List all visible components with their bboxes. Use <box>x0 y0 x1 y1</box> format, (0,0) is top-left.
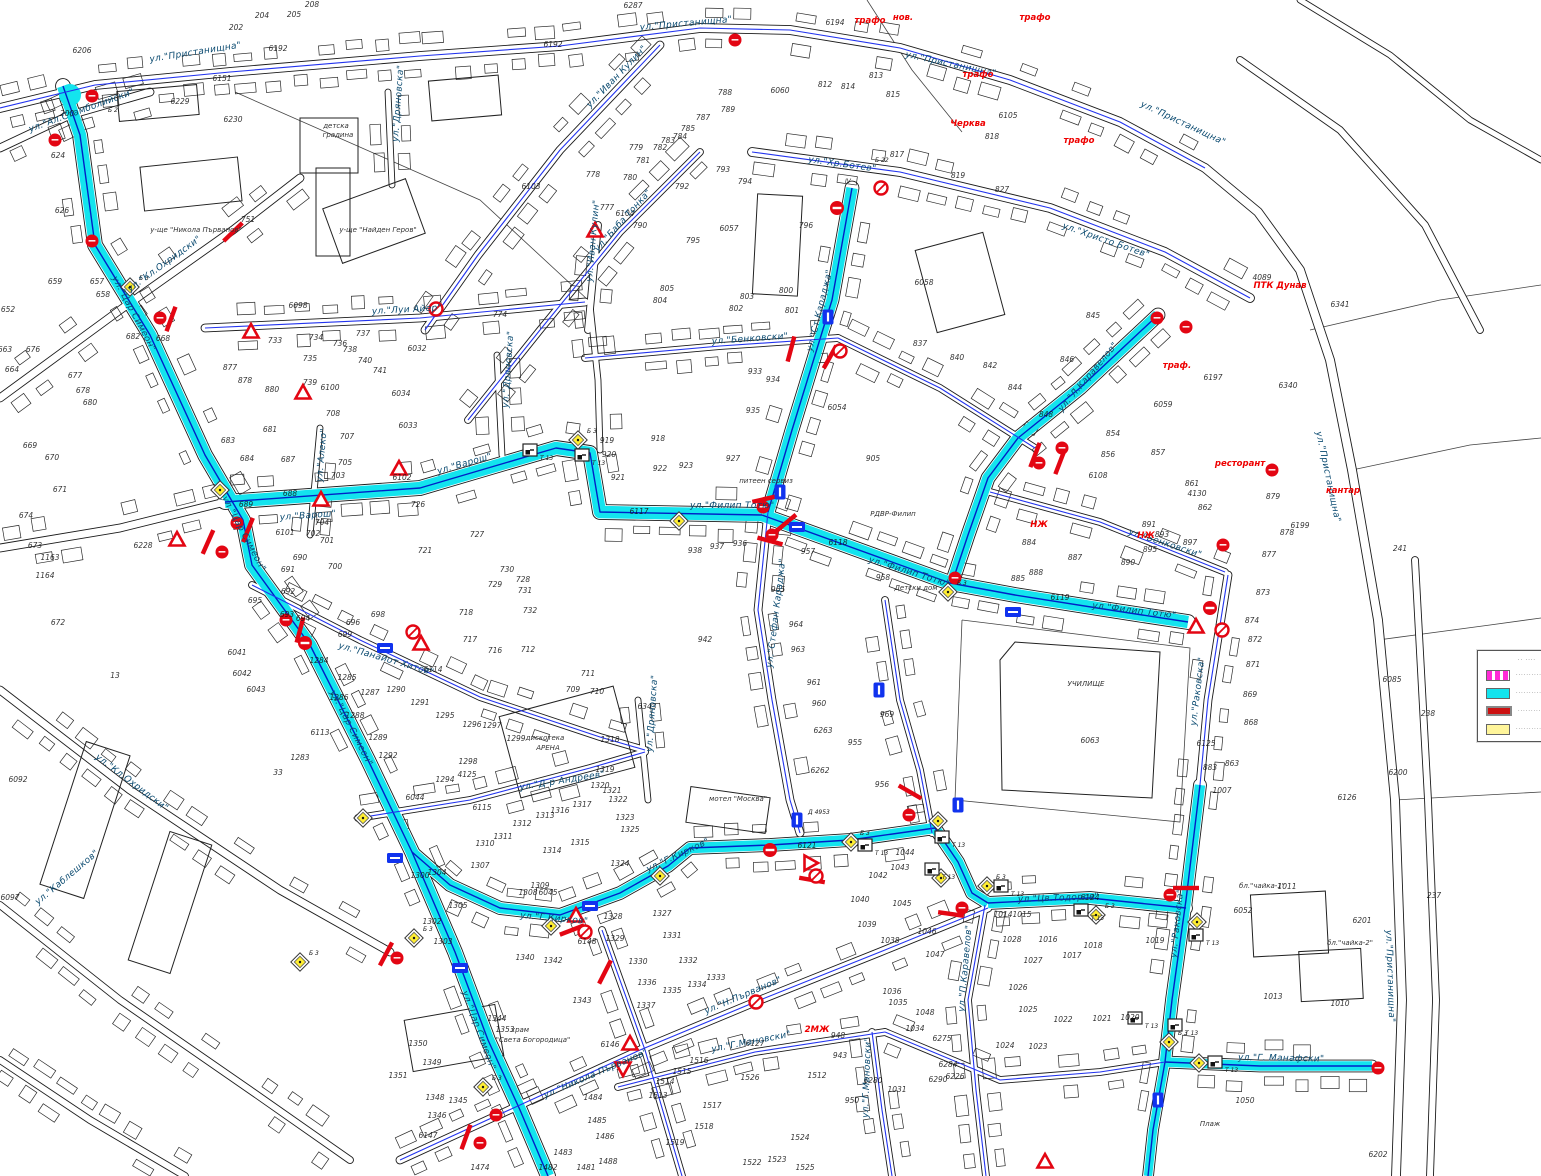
building-footprint <box>10 146 26 162</box>
poi-red-label: трафо <box>1063 136 1094 146</box>
sign-bar <box>380 647 390 649</box>
building-footprint <box>99 1104 120 1123</box>
building-footprint <box>462 231 481 251</box>
no-entry-bar <box>1206 607 1215 609</box>
building-footprint <box>849 521 872 540</box>
building-footprint <box>535 26 555 40</box>
building-footprint <box>1020 63 1038 76</box>
building-footprint <box>977 966 992 986</box>
hydrant-tag <box>52 139 59 141</box>
parcel-number: 1299 <box>506 734 525 743</box>
building-footprint <box>422 31 444 44</box>
parcel-number: 950 <box>845 1096 860 1105</box>
parcel-number: 670 <box>45 453 60 462</box>
building-footprint <box>977 1005 987 1020</box>
parcel-number: 6125 <box>1196 739 1215 748</box>
building-footprint <box>540 319 555 329</box>
building-footprint <box>821 982 843 998</box>
building-footprint <box>640 1113 657 1132</box>
parcel-number: 964 <box>789 620 804 629</box>
building-footprint <box>57 927 75 943</box>
building-footprint <box>875 57 892 71</box>
parcel-number: 708 <box>326 409 341 418</box>
building-footprint <box>753 162 775 177</box>
parcel-number: 827 <box>995 185 1010 194</box>
parcel-number: 1474 <box>470 1163 489 1172</box>
map-viewport[interactable]: Т 13Т 13Т 13Т 13Т 13Т 13Т 13Т 13Т 13Т 13… <box>0 0 1541 1176</box>
parcel-number: 6148 <box>577 937 596 946</box>
sign-bar <box>779 488 781 497</box>
parcel-number: 787 <box>696 113 711 122</box>
box-glyph <box>997 886 1002 891</box>
parcel-number: 1028 <box>1002 935 1021 944</box>
hydrant-box-label: Т 13 <box>1091 915 1104 922</box>
parcel-number: 1324 <box>610 859 629 868</box>
building-footprint <box>36 380 53 396</box>
building-footprint <box>484 64 497 74</box>
building-footprint <box>318 45 334 56</box>
parcel-number: 800 <box>779 286 794 295</box>
building-footprint <box>35 908 54 926</box>
parcel-number: 778 <box>586 170 601 179</box>
parcel-number: 923 <box>679 461 694 470</box>
parcel-number: 1350 <box>408 1039 427 1048</box>
hydrant-tag <box>157 317 164 319</box>
parcel-number: 688 <box>283 489 298 498</box>
building-footprint <box>1148 913 1168 928</box>
building-footprint <box>158 531 174 542</box>
parcel-number: 788 <box>718 88 733 97</box>
building-footprint <box>508 1148 524 1168</box>
building-footprint <box>1113 211 1129 225</box>
building-footprint <box>1169 632 1184 645</box>
parcel-number: 948 <box>831 1031 846 1040</box>
building-footprint <box>259 514 278 524</box>
parcel-number: 845 <box>1086 311 1101 320</box>
hydrant-tag <box>1269 469 1276 471</box>
parcel-number: 695 <box>248 596 263 605</box>
hydrant-icon <box>86 235 99 248</box>
building-footprint <box>1140 149 1157 165</box>
building-footprint <box>1022 876 1035 884</box>
parcel-number: 1311 <box>493 832 512 841</box>
parcel-number: 1314 <box>542 846 561 855</box>
parcel-number: 729 <box>488 580 503 589</box>
parcel-number: 6290 <box>928 1075 947 1084</box>
building-footprint <box>2 525 21 540</box>
road-surface <box>1205 168 1402 1176</box>
building-footprint <box>954 1095 969 1117</box>
parcel-number: 815 <box>886 90 901 99</box>
building-footprint <box>609 1019 625 1038</box>
building-footprint <box>1023 482 1045 495</box>
box-glyph <box>1192 935 1197 940</box>
parcel-number: 1304 <box>427 868 446 877</box>
parcel-number: 710 <box>590 687 605 696</box>
building-footprint <box>401 125 411 141</box>
parcel-number: 883 <box>1203 763 1218 772</box>
hydrant-icon <box>1372 1062 1385 1075</box>
parcel-number: 1346 <box>427 1111 446 1120</box>
building-footprint <box>31 517 46 532</box>
building-footprint <box>851 253 865 267</box>
box-glyph <box>928 869 933 874</box>
poi-red-label: трафо <box>854 16 885 26</box>
building-footprint <box>288 1092 303 1106</box>
building-footprint <box>57 1077 78 1094</box>
landmark-label: АРЕНА <box>535 744 560 752</box>
parcel-number: 921 <box>611 473 625 482</box>
poi-red-label: Черква <box>950 119 986 129</box>
building-footprint <box>753 862 768 872</box>
building-footprint <box>1265 1040 1283 1050</box>
parcel-number: 204 <box>255 11 270 20</box>
hydrant-tag <box>1220 544 1227 546</box>
building-footprint <box>0 81 19 95</box>
building-footprint <box>1061 188 1078 203</box>
building-footprint <box>791 43 811 58</box>
building-footprint <box>1119 916 1140 929</box>
building-footprint <box>359 792 379 805</box>
building-footprint <box>1173 814 1184 835</box>
building-footprint <box>988 1123 1002 1137</box>
parcel-number: 6197 <box>1203 373 1222 382</box>
building-footprint <box>836 942 856 960</box>
box-glyph <box>1171 1025 1176 1030</box>
info-sign-icon <box>792 813 803 828</box>
building-footprint <box>505 288 526 297</box>
building-footprint <box>815 136 832 149</box>
building-footprint <box>896 605 906 619</box>
building-footprint <box>961 45 982 58</box>
building-footprint <box>811 173 827 186</box>
building-footprint <box>552 751 568 767</box>
parcel-number: 6063 <box>1080 736 1099 745</box>
building-footprint <box>952 597 970 609</box>
building-footprint <box>346 947 366 963</box>
parcel-number: 863 <box>1225 759 1240 768</box>
parcel-number: 969 <box>880 710 895 719</box>
building-footprint <box>1321 1076 1339 1088</box>
landmark-label: детска <box>322 122 349 130</box>
parcel-number: 6101 <box>275 528 294 537</box>
map-legend: ·· ·····································… <box>1477 650 1541 742</box>
parcel-number: 663 <box>0 345 12 354</box>
building-footprint <box>268 1117 285 1134</box>
parcel-number: 1283 <box>290 753 309 762</box>
parcel-number: 1297 <box>482 721 501 730</box>
building-footprint <box>39 736 55 751</box>
valve-diamond-label: Б 3 <box>957 580 967 587</box>
building-footprint <box>1070 523 1092 538</box>
parcel-number: 6341 <box>1330 300 1349 309</box>
building-footprint <box>444 986 462 1009</box>
building-footprint <box>11 393 31 412</box>
building-footprint <box>346 39 363 49</box>
building-footprint <box>370 124 381 145</box>
building-footprint <box>1042 616 1064 631</box>
sign-bar <box>796 816 798 825</box>
parcel-number: 237 <box>1427 891 1442 900</box>
parcel-number: 6034 <box>391 389 410 398</box>
valve-diamond-icon <box>291 953 309 971</box>
parcel-number: 1323 <box>615 813 634 822</box>
hydrant-tag <box>952 577 959 579</box>
parcel-number: 6097 <box>0 893 19 902</box>
poi-red-label: НЖ <box>1030 520 1048 530</box>
restriction-ring-icon <box>810 870 823 883</box>
building-footprint <box>614 242 634 264</box>
parcel-number: 1287 <box>360 688 379 697</box>
parcel-number: 6151 <box>212 74 231 83</box>
parcel-number: 933 <box>748 367 763 376</box>
building-footprint <box>61 547 83 563</box>
annotation-label: Б 22 <box>875 157 889 164</box>
parcel-number: 1488 <box>598 1157 617 1166</box>
building-footprint <box>634 526 650 534</box>
building-footprint <box>1087 202 1103 216</box>
parcel-number: 1294 <box>435 775 454 784</box>
building-footprint <box>193 850 212 868</box>
hydrant-icon <box>903 809 916 822</box>
box-glyph <box>1077 910 1082 915</box>
building-footprint <box>554 117 568 132</box>
no-entry-sign-icon <box>1203 601 1217 615</box>
building-footprint <box>1185 278 1203 294</box>
parcel-number: 1322 <box>608 795 627 804</box>
parcel-number: 6032 <box>407 344 426 353</box>
building-footprint <box>569 491 582 506</box>
building-footprint <box>892 1114 903 1130</box>
building-footprint <box>235 83 257 94</box>
parcel-number: 728 <box>516 575 531 584</box>
building-footprint <box>933 770 946 791</box>
parcel-number: 709 <box>566 685 581 694</box>
parcel-number: 626 <box>55 206 70 215</box>
building-footprint <box>645 361 666 370</box>
parcel-number: 658 <box>96 290 111 299</box>
building-footprint <box>1053 488 1069 504</box>
building-footprint <box>214 84 229 95</box>
parcel-number: 961 <box>807 678 821 687</box>
parcel-number: 727 <box>470 530 485 539</box>
route-sign-icon <box>377 643 393 653</box>
building-footprint <box>177 354 196 375</box>
building-footprint <box>257 476 273 487</box>
hydrant-icon <box>490 1109 503 1122</box>
building-footprint <box>645 333 661 344</box>
building-footprint <box>174 489 196 506</box>
building-footprint <box>746 646 758 660</box>
parcel-number: 819 <box>951 171 966 180</box>
parcel-number: 1337 <box>636 1001 655 1010</box>
parcel-number: 1291 <box>410 698 429 707</box>
building-footprint <box>863 1118 875 1133</box>
hydrant-icon <box>154 312 167 325</box>
hydrant-icon <box>766 529 779 542</box>
building-footprint <box>775 861 795 871</box>
building-footprint <box>370 625 388 641</box>
parcel-number: 1027 <box>1023 956 1042 965</box>
hydrant-tag <box>1167 894 1174 896</box>
hydrant-box-label: Т 13 <box>875 850 888 857</box>
building-footprint <box>846 277 861 298</box>
parcel-number: 879 <box>1266 492 1281 501</box>
parcel-number: 818 <box>985 132 1000 141</box>
building-footprint <box>856 364 879 383</box>
large-building <box>140 157 242 211</box>
building-footprint <box>234 53 252 62</box>
building-footprint <box>951 1035 961 1052</box>
no-entry-bar <box>301 642 310 644</box>
parcel-number: 673 <box>28 541 43 550</box>
parcel-number: 1302 <box>422 917 441 926</box>
parcel-boundary <box>1378 618 1541 640</box>
street-name-label: ул."Пристанищна" <box>1313 430 1342 524</box>
building-footprint <box>503 227 524 249</box>
large-building <box>1299 948 1364 1001</box>
hydrant-box-label: Т 13 <box>952 842 965 849</box>
parcel-number: 6054 <box>827 403 846 412</box>
building-footprint <box>716 487 737 500</box>
building-footprint <box>1181 1035 1195 1053</box>
parcel-boundary <box>1395 792 1541 800</box>
building-footprint <box>600 289 612 303</box>
parcel-number: 6201 <box>1352 916 1371 925</box>
parcel-number: 960 <box>812 699 827 708</box>
hydrant-icon <box>1056 442 1069 455</box>
parcel-number: 779 <box>629 143 644 152</box>
building-footprint <box>655 732 665 748</box>
hydrant-icon <box>49 134 62 147</box>
building-footprint <box>898 186 920 202</box>
route-sign-icon <box>452 963 468 973</box>
building-footprint <box>215 866 235 884</box>
building-footprint <box>1177 759 1188 777</box>
box-glyph <box>1211 1062 1216 1067</box>
building-footprint <box>812 390 828 407</box>
parcel-number: 4130 <box>1187 489 1206 498</box>
parcel-number: 1318 <box>600 735 619 744</box>
info-sign-icon <box>953 798 964 813</box>
hydrant-tag <box>1154 317 1161 319</box>
building-footprint <box>320 77 338 88</box>
building-footprint <box>601 990 618 1013</box>
parcel-number: 1485 <box>587 1116 606 1125</box>
building-footprint <box>799 441 815 457</box>
parcel-number: 1325 <box>620 825 639 834</box>
parcel-number: 871 <box>1246 660 1260 669</box>
legend-row: ·········· <box>1486 723 1536 735</box>
building-footprint <box>507 800 524 813</box>
building-footprint <box>574 312 583 328</box>
legend-row: ············ <box>1486 669 1536 681</box>
school-building <box>1000 642 1160 798</box>
building-footprint <box>785 133 806 148</box>
parcel-number: 1039 <box>857 920 876 929</box>
building-footprint <box>649 161 669 181</box>
parcel-number: 1285 <box>337 673 356 682</box>
parcel-number: 705 <box>338 458 353 467</box>
legend-row: ··········· <box>1486 687 1536 699</box>
building-footprint <box>38 1104 59 1122</box>
building-footprint <box>487 877 506 893</box>
building-footprint <box>127 57 143 69</box>
building-footprint <box>627 1089 642 1101</box>
parcel-number: 731 <box>518 586 532 595</box>
parcel-number: 868 <box>1244 718 1259 727</box>
building-footprint <box>1072 82 1091 96</box>
building-footprint <box>848 319 869 336</box>
building-footprint <box>818 246 830 262</box>
hydrant-tag <box>394 957 401 959</box>
hydrant-icon <box>1266 464 1279 477</box>
parcel-number: 6230 <box>223 115 242 124</box>
building-footprint <box>796 13 816 24</box>
poi-red-label: 2МЖ <box>805 1025 830 1035</box>
parcel-number: 680 <box>83 398 98 407</box>
parcel-number: 938 <box>688 546 703 555</box>
closed-valve-bar-icon <box>597 959 613 984</box>
parcel-number: 1292 <box>378 751 397 760</box>
parcel-number: 6058 <box>914 278 933 287</box>
parcel-number: 942 <box>698 635 713 644</box>
building-footprint <box>123 1121 142 1139</box>
building-footprint <box>82 769 101 787</box>
parcel-number: 1515 <box>672 1067 691 1076</box>
building-footprint <box>884 1043 901 1058</box>
parcel-number: 6117 <box>629 507 648 516</box>
building-footprint <box>749 672 764 690</box>
building-footprint <box>1150 959 1164 974</box>
hydrant-tag <box>1375 1067 1382 1069</box>
building-footprint <box>405 889 420 906</box>
parcel-number: 862 <box>1198 503 1213 512</box>
building-footprint <box>312 1152 329 1169</box>
hydrant-tag <box>1059 447 1066 449</box>
building-footprint <box>294 74 308 86</box>
building-footprint <box>752 824 766 832</box>
road-casing <box>425 45 660 330</box>
parcel-number: 1020 <box>1120 1013 1139 1022</box>
parcel-number: 716 <box>488 646 503 655</box>
parcel-number: 880 <box>265 385 280 394</box>
building-footprint <box>986 516 1000 532</box>
parcel-number: 6057 <box>719 224 738 233</box>
hydrant-box-label: Т 13 <box>592 460 605 467</box>
hydrant-tag <box>477 1142 484 1144</box>
building-footprint <box>435 1147 452 1162</box>
cadastral-map-canvas[interactable]: Т 13Т 13Т 13Т 13Т 13Т 13Т 13Т 13Т 13Т 13… <box>0 0 1541 1176</box>
parcel-number: 1308 <box>518 888 537 897</box>
parcel-number: 1042 <box>868 871 887 880</box>
warning-triangle-icon <box>623 1036 638 1050</box>
parcel-number: 721 <box>418 546 432 555</box>
hydrant-box-label: Т 13 <box>540 455 553 462</box>
info-sign-icon <box>1153 1093 1164 1108</box>
road-casing <box>225 448 762 515</box>
parcel-number: 1336 <box>637 978 656 987</box>
parcel-number: 1164 <box>35 571 54 580</box>
sign-bar <box>390 857 400 859</box>
landmark-label: РДВР-Филип <box>870 510 916 518</box>
building-footprint <box>1064 1085 1079 1098</box>
building-footprint <box>766 405 782 422</box>
building-footprint <box>1226 1081 1242 1092</box>
building-footprint <box>689 525 706 536</box>
road-surface <box>0 905 350 1160</box>
parcel-number: 700 <box>328 562 343 571</box>
